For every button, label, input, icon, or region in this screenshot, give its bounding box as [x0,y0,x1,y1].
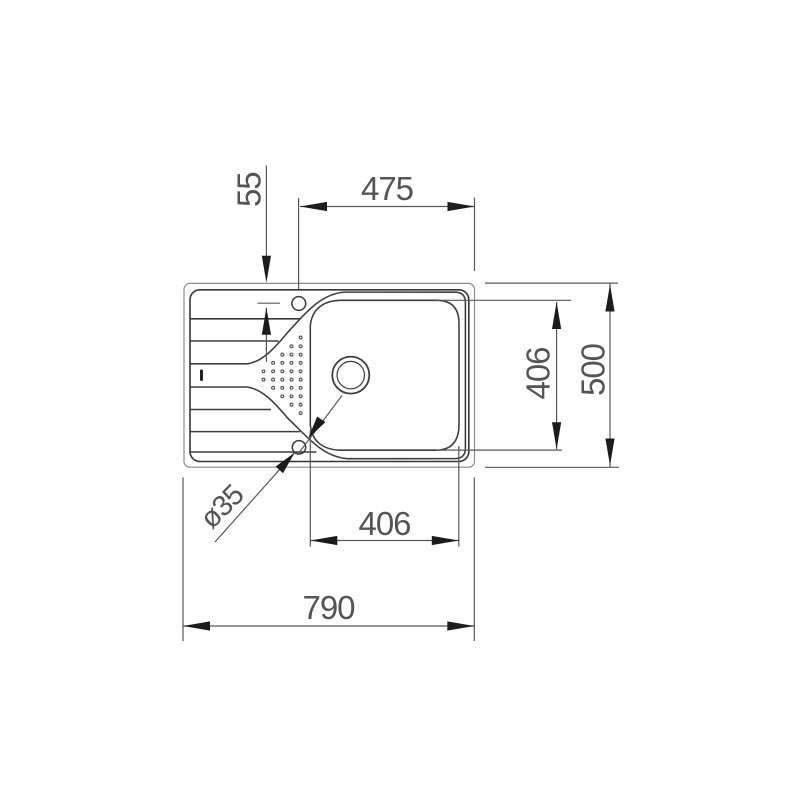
svg-text:790: 790 [302,589,355,626]
svg-text:406: 406 [358,505,410,542]
svg-text:475: 475 [361,170,413,207]
svg-text:55: 55 [231,172,268,207]
svg-text:406: 406 [520,347,557,399]
svg-text:500: 500 [575,343,612,396]
svg-text:ø35: ø35 [194,479,250,535]
